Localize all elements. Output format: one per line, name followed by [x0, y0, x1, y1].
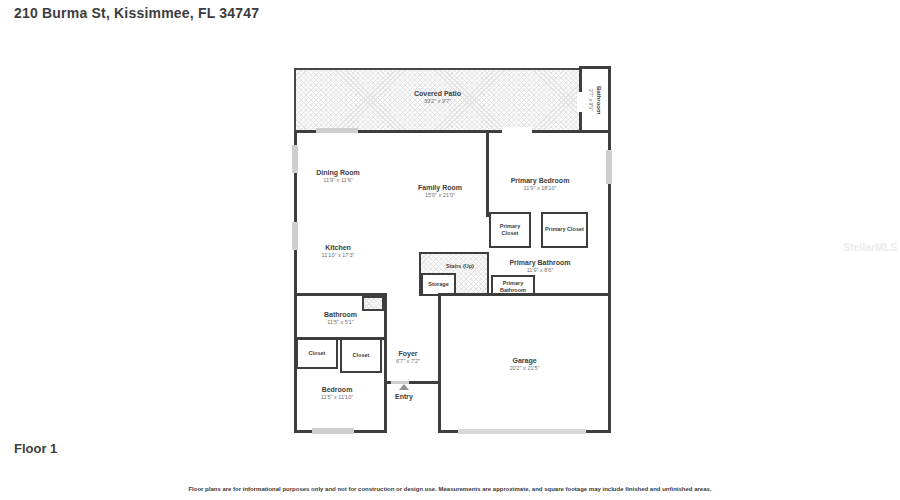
window — [292, 145, 298, 173]
window — [606, 150, 612, 184]
window — [312, 428, 354, 434]
disclaimer-text: Floor plans are for informational purpos… — [0, 486, 900, 492]
room-label-closet-right: Closet — [353, 352, 370, 359]
room-bathroom-upper: Bathroom 2'7" x 9'5" — [579, 66, 611, 134]
floor-plan: Covered Patio 39'2" x 9'7" Bathroom 2'7"… — [0, 0, 900, 500]
room-name: Bathroom — [594, 86, 602, 114]
window — [292, 222, 298, 250]
room-primary-closet-right: Primary Closet — [541, 212, 588, 248]
room-name: Closet — [353, 352, 370, 359]
room-name: Storage — [428, 281, 448, 288]
window — [316, 128, 358, 133]
room-garage — [438, 293, 611, 433]
room-dims: 2'7" x 9'5" — [587, 86, 594, 114]
stellar-mls-watermark: StellarMLS — [843, 241, 897, 253]
floor-label: Floor 1 — [14, 441, 57, 456]
room-label-storage: Storage — [428, 281, 448, 288]
entry-notch — [387, 381, 438, 435]
room-name: Primary Bathroom — [493, 280, 533, 293]
room-name: Closet — [309, 350, 326, 357]
room-closet-right: Closet — [340, 338, 382, 373]
room-label-bathroom-upper: Bathroom 2'7" x 9'5" — [587, 86, 602, 114]
room-name: Primary Closet — [491, 223, 529, 237]
room-label-primary-closet-left: Primary Closet — [491, 223, 529, 237]
garage-door — [458, 429, 586, 434]
room-name: Primary Closet — [545, 226, 584, 233]
entry-arrow-icon — [399, 384, 409, 390]
room-label-primary-closet-right: Primary Closet — [545, 226, 584, 233]
room-covered-patio — [294, 68, 581, 132]
door-opening — [577, 92, 583, 112]
room-closet-left: Closet — [296, 338, 338, 369]
room-primary-closet-left: Primary Closet — [489, 212, 531, 248]
room-label-primary-bathroom-wc: Primary Bathroom — [493, 280, 533, 293]
shower — [362, 296, 384, 311]
wall-segment — [486, 133, 489, 217]
room-label-closet-left: Closet — [309, 350, 326, 357]
door-opening — [502, 127, 532, 135]
